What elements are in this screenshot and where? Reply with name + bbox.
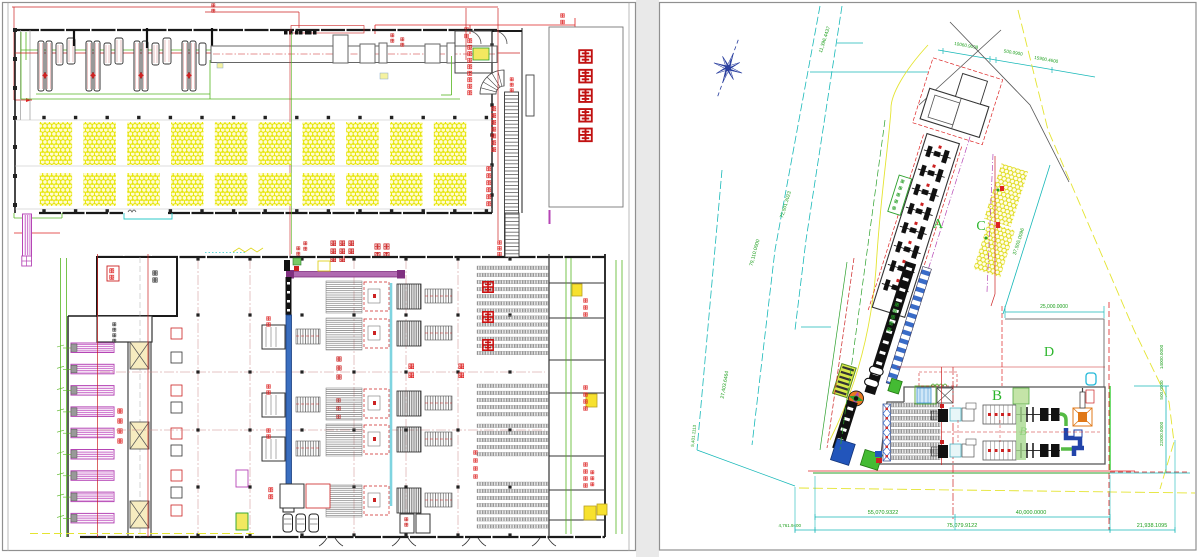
svg-text:500.0000: 500.0000 — [1159, 380, 1164, 400]
svg-text:D: D — [1044, 345, 1054, 360]
svg-text:A: A — [933, 217, 944, 232]
svg-text:55,070.9322: 55,070.9322 — [868, 510, 899, 516]
svg-text:C: C — [976, 219, 985, 234]
svg-text:21,938.1095: 21,938.1095 — [1137, 523, 1168, 529]
svg-text:B: B — [992, 388, 1002, 404]
svg-text:40,000.0000: 40,000.0000 — [1016, 510, 1047, 516]
svg-text:22000.0000: 22000.0000 — [1159, 421, 1164, 446]
svg-text:25,000.0000: 25,000.0000 — [1040, 304, 1068, 310]
svg-text:14000.0000: 14000.0000 — [1159, 344, 1164, 369]
svg-text:75,079.9122: 75,079.9122 — [947, 523, 978, 529]
svg-text:4,761.9400: 4,761.9400 — [778, 523, 801, 528]
